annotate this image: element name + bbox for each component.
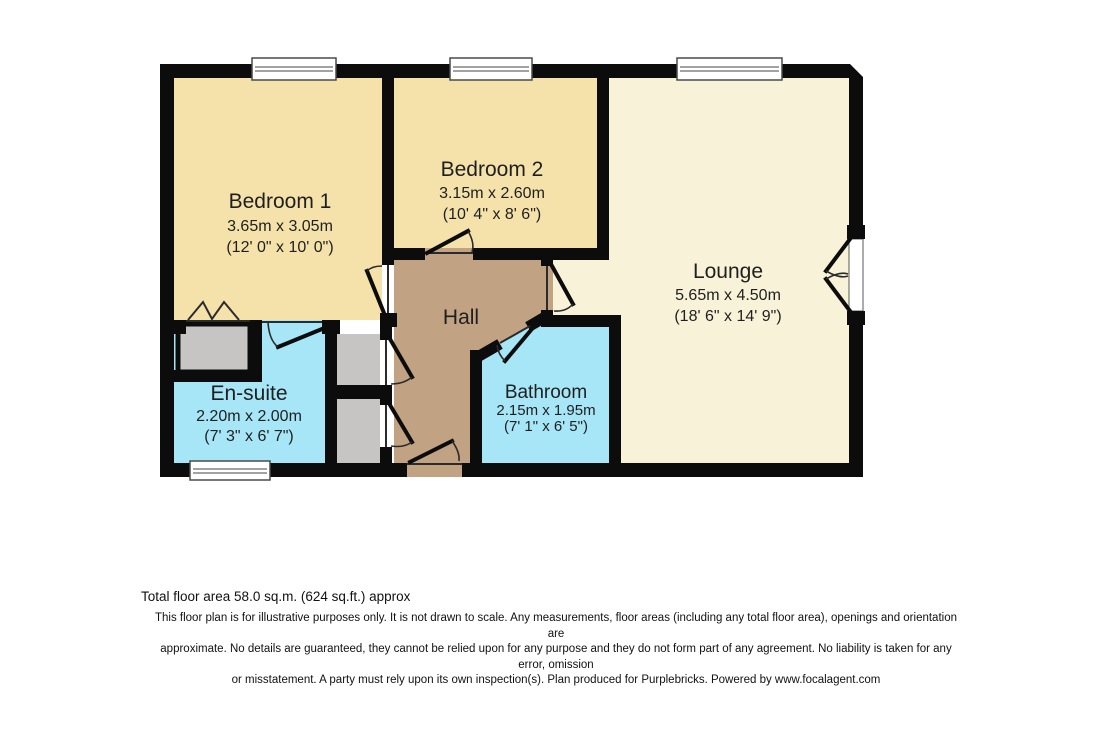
lounge-label: Lounge: [693, 260, 763, 283]
total-floor-area-text: Total floor area 58.0 sq.m. (624 sq.ft.)…: [141, 589, 410, 604]
disclaimer-line-3: or misstatement. A party must rely upon …: [146, 673, 966, 689]
bedroom1-label: Bedroom 1: [229, 190, 332, 213]
ensuite-metric: 2.20m x 2.00m: [196, 408, 302, 425]
window-bedroom2-symbol: [450, 58, 532, 80]
ensuite-imperial: (7' 3" x 6' 7"): [204, 428, 294, 445]
disclaimer-line-2: approximate. No details are guaranteed, …: [146, 642, 966, 673]
bathroom-metric: 2.15m x 1.95m: [496, 402, 595, 419]
wardrobe-box: [178, 324, 250, 372]
bedroom1-metric: 3.65m x 3.05m: [227, 218, 333, 235]
bedroom2-metric: 3.15m x 2.60m: [439, 185, 545, 202]
cupboard-box-1: [337, 334, 380, 385]
window-bedroom1-symbol: [252, 58, 336, 80]
window-lounge-symbol: [677, 58, 782, 80]
floor-plan-page: Bedroom 1 3.65m x 3.05m (12' 0" x 10' 0"…: [0, 0, 1112, 743]
bedroom2-imperial: (10' 4" x 8' 6"): [443, 206, 541, 223]
cupboard-box-2: [337, 399, 380, 463]
lounge-metric: 5.65m x 4.50m: [675, 287, 781, 304]
bathroom-label: Bathroom: [505, 382, 587, 403]
window-ensuite-symbol: [190, 461, 270, 480]
lounge-imperial: (18' 6" x 14' 9"): [674, 308, 781, 325]
disclaimer-line-1: This floor plan is for illustrative purp…: [146, 611, 966, 642]
bathroom-imperial: (7' 1" x 6' 5"): [504, 418, 588, 435]
disclaimer-text: This floor plan is for illustrative purp…: [146, 611, 966, 689]
bedroom1-imperial: (12' 0" x 10' 0"): [226, 239, 333, 256]
hall-label: Hall: [443, 306, 479, 329]
ensuite-label: En-suite: [210, 382, 287, 405]
bedroom2-label: Bedroom 2: [441, 158, 544, 181]
